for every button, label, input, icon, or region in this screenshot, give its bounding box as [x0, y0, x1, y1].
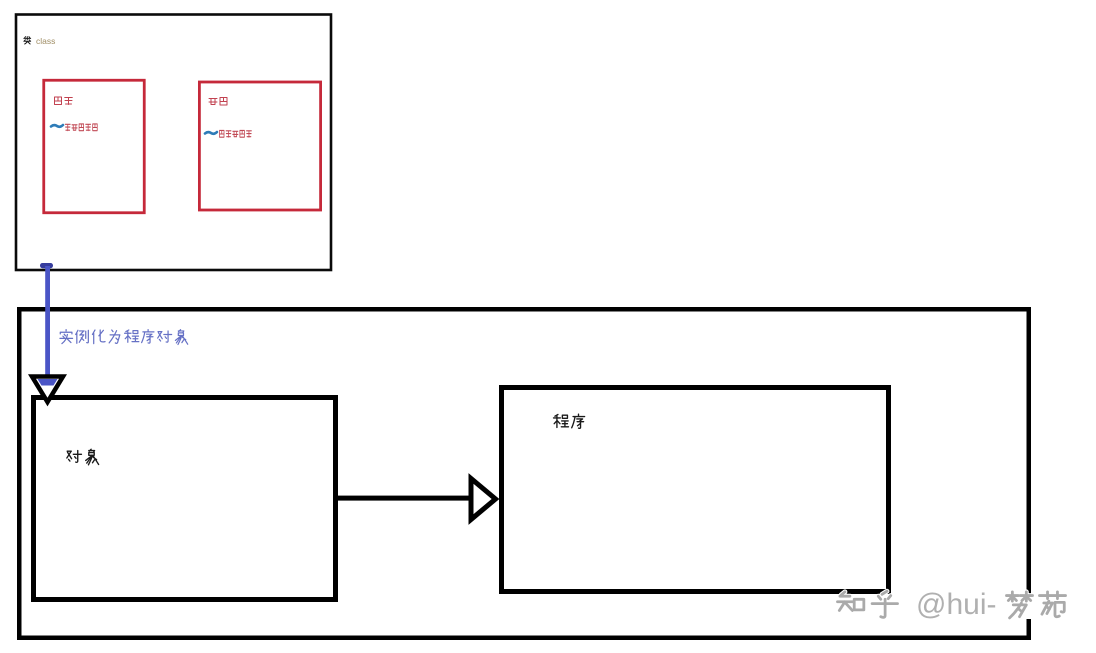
svg-text:@hui-: @hui- [916, 588, 996, 621]
svg-text:class: class [36, 36, 55, 46]
